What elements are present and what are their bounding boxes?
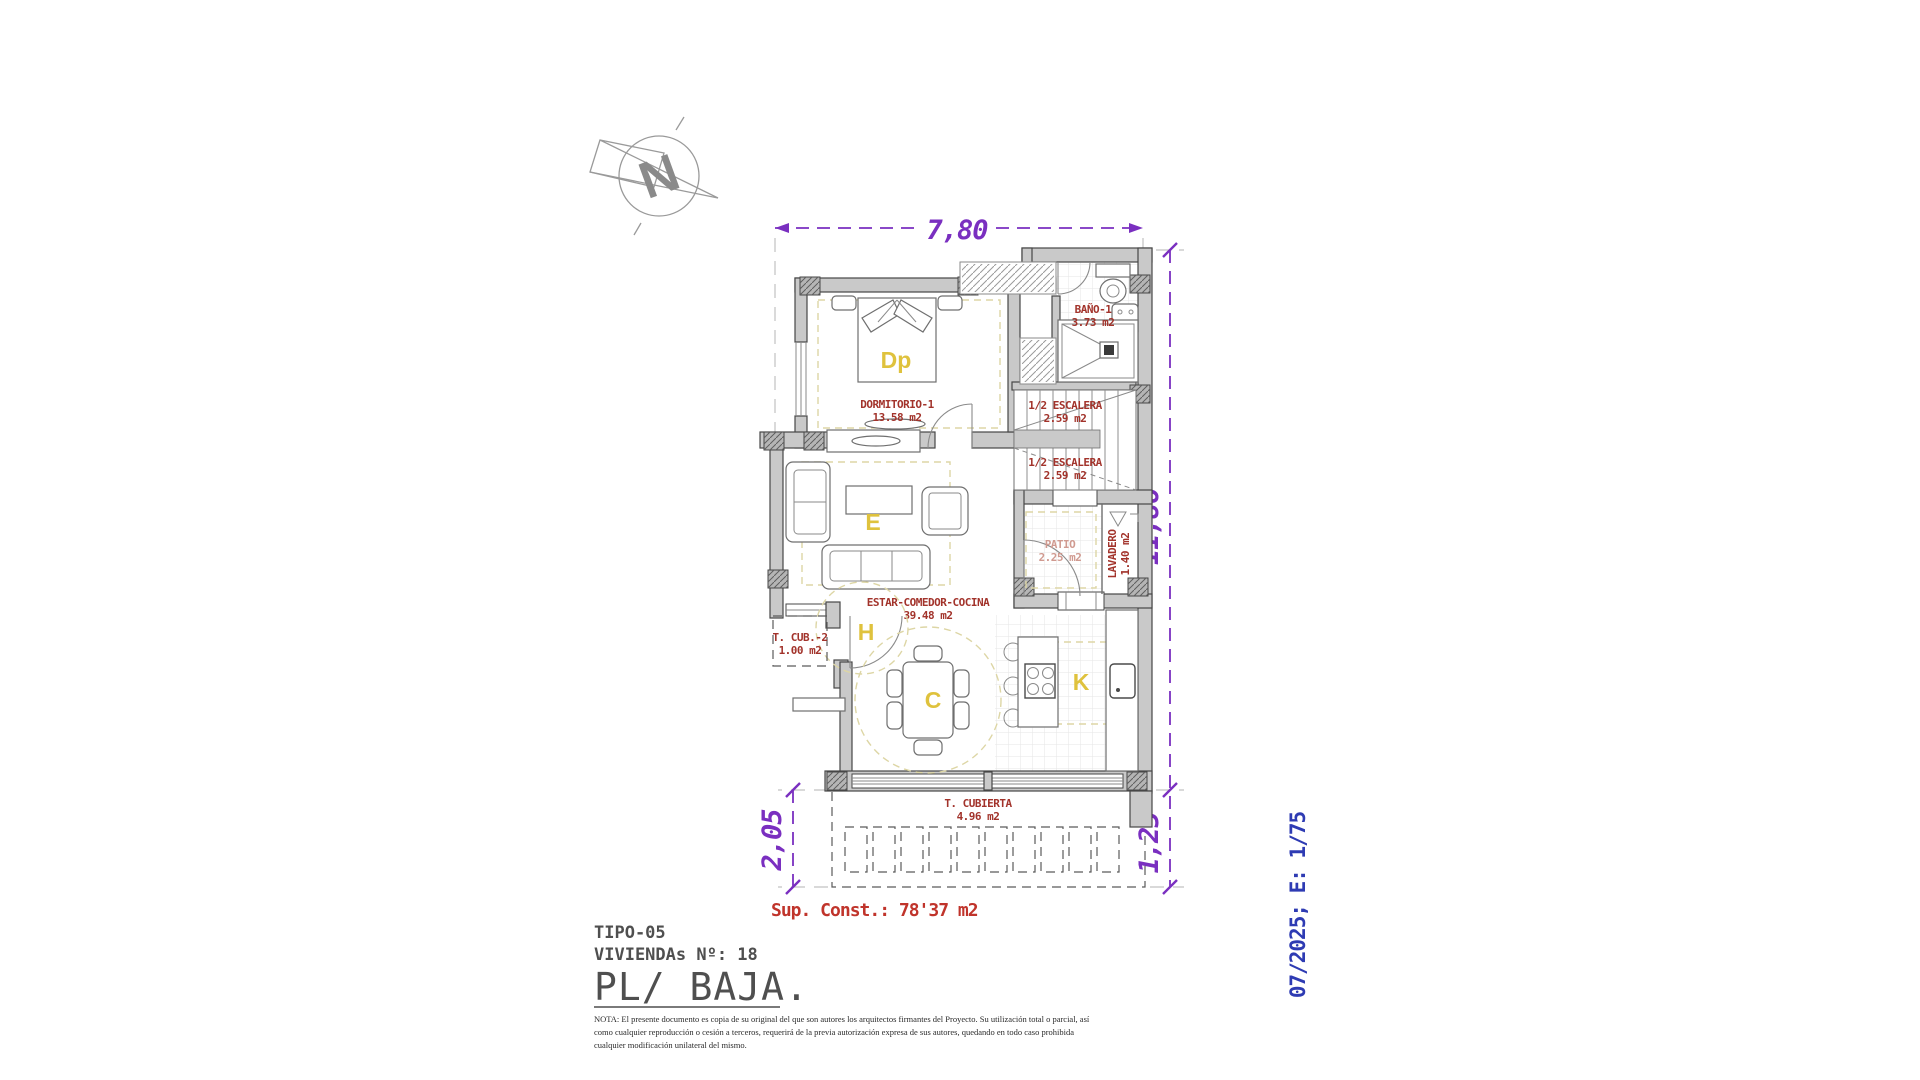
living-room: E ESTAR-COMEDOR-COCINA 39.48 m2 [786,430,990,622]
estar-area: 39.48 m2 [904,609,953,622]
north-letter: N [632,143,687,210]
shower [1058,320,1138,382]
nightstand-right [938,296,962,310]
north-compass: N [590,117,718,235]
terrace: T. CUBIERTA 4.96 m2 [832,792,1145,887]
escalera-upper-area: 2.59 m2 [1044,412,1087,425]
kitchen-sink [1110,664,1135,698]
lavadero-area: 1.40 m2 [1119,533,1132,576]
staircase: 1/2 ESCALERA 2.59 m2 1/2 ESCALERA 2.59 m… [1014,390,1136,490]
title-viviendas: VIVIENDAs Nº: 18 [594,945,758,965]
nota-line1: NOTA: El presente documento es copia de … [594,1014,1090,1024]
escalera-lower-area: 2.59 m2 [1044,469,1087,482]
bedroom: Dp DORMITORIO-1 13.58 m2 [818,296,1000,448]
tcubierta-area: 4.96 m2 [957,810,1000,823]
patio-name: PATIO [1045,538,1076,551]
dormitorio-name: DORMITORIO-1 [860,398,934,411]
title-tipo: TIPO-05 [594,923,666,943]
entry-step [793,698,845,711]
date-scale-note: 07/2025; E: 1/75 [1286,812,1310,999]
title-block: TIPO-05 VIVIENDAs Nº: 18 PL/ BAJA. NOTA:… [594,923,1090,1050]
lavadero-name: LAVADERO [1106,529,1119,579]
dining-area: C [855,627,1001,773]
nota-line2: como cualquier reproducción o cesión a t… [594,1027,1074,1037]
dormitorio-area: 13.58 m2 [873,411,922,424]
title-plano: PL/ BAJA. [594,965,809,1009]
bano-name: BAÑO-1 [1075,303,1113,316]
kitchen-island [1018,637,1058,727]
zone-letter-comedor: C [925,687,942,713]
tcub2-name: T. CUB.-2 [772,631,827,644]
bano-area: 3.73 m2 [1072,316,1115,329]
estar-name: ESTAR-COMEDOR-COCINA [867,596,990,609]
tcubierta-name: T. CUBIERTA [944,797,1012,810]
escalera-upper-name: 1/2 ESCALERA [1028,399,1102,412]
floor-plan-sheet: N 7,80 11,86 1,25 2,05 [0,0,1920,1080]
dim-top-value: 7,80 [926,215,988,246]
armchair [922,487,968,535]
sideboard [827,430,920,452]
sofa-three-seat [822,545,930,589]
built-area-summary: Sup. Const.: 78'37 m2 [771,900,978,921]
sofa-two-seat [786,462,830,542]
zone-letter-estar: E [865,509,880,535]
floor-plan-drawing: N 7,80 11,86 1,25 2,05 [0,0,1920,1080]
dim-left-value: 2,05 [757,809,788,872]
patio-area: 2.25 m2 [1039,551,1082,564]
kitchen-counter [1106,610,1138,771]
nightstand-left [832,296,856,310]
tcub2-area: 1.00 m2 [779,644,822,657]
nota-line3: cualquier modificación unilateral del mi… [594,1040,747,1050]
zone-letter-hall: H [858,619,875,645]
escalera-lower-name: 1/2 ESCALERA [1028,456,1102,469]
zone-letter-cocina: K [1073,669,1090,695]
zone-letter-dormitorio: Dp [881,347,912,373]
bedroom-window [796,342,806,416]
dimension-left: 2,05 [757,783,828,894]
